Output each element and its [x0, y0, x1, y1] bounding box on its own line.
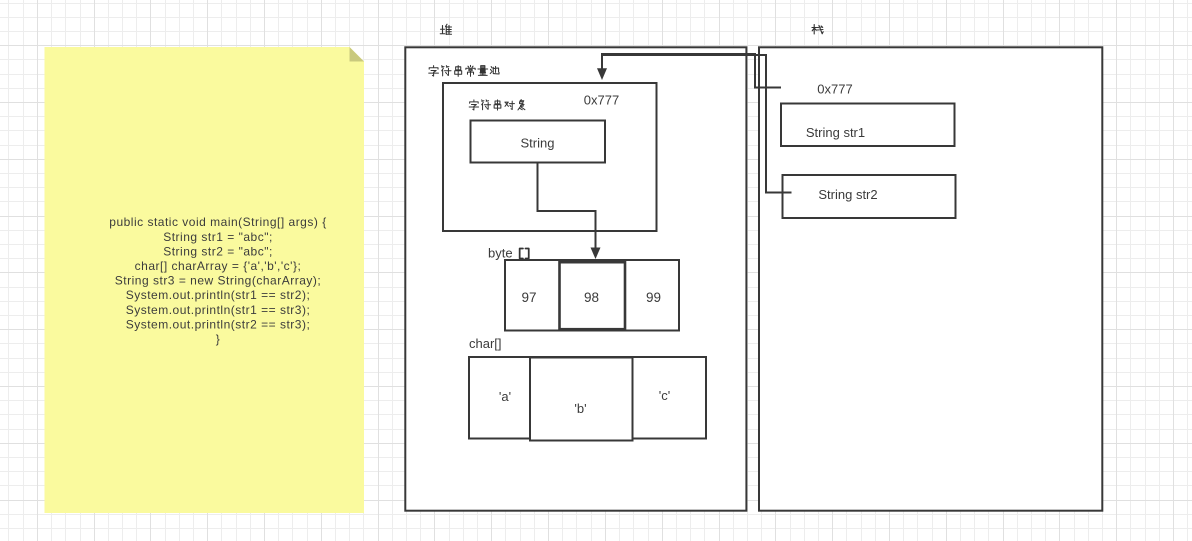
svg-text:'b': 'b' [574, 401, 586, 416]
svg-text:String str1 = "abc";: String str1 = "abc"; [163, 230, 273, 244]
svg-text:System.out.println(str2 == str: System.out.println(str2 == str3); [126, 317, 311, 331]
svg-text:String: String [521, 136, 555, 151]
svg-text:97: 97 [521, 290, 536, 305]
svg-text:'c': 'c' [659, 388, 670, 403]
svg-text:0x777: 0x777 [817, 82, 852, 97]
svg-text:public static void main(String: public static void main(String[] args) { [109, 215, 326, 229]
svg-text:System.out.println(str1 == str: System.out.println(str1 == str3); [126, 303, 311, 317]
svg-text:}: } [216, 332, 221, 346]
svg-text:String str1: String str1 [806, 125, 865, 140]
svg-text:String str3 = new String(charA: String str3 = new String(charArray); [115, 274, 321, 288]
svg-text:String str2: String str2 [818, 187, 877, 202]
svg-text:char[]: char[] [469, 336, 502, 351]
svg-text:char[] charArray = {'a','b','c: char[] charArray = {'a','b','c'}; [135, 259, 302, 273]
svg-text:98: 98 [584, 290, 599, 305]
svg-text:byte: byte [488, 246, 513, 261]
svg-text:99: 99 [646, 290, 661, 305]
svg-text:0x777: 0x777 [584, 93, 619, 108]
svg-text:'a': 'a' [499, 389, 511, 404]
svg-text:System.out.println(str1 == str: System.out.println(str1 == str2); [126, 288, 311, 302]
svg-text:String str2 = "abc";: String str2 = "abc"; [163, 244, 273, 258]
